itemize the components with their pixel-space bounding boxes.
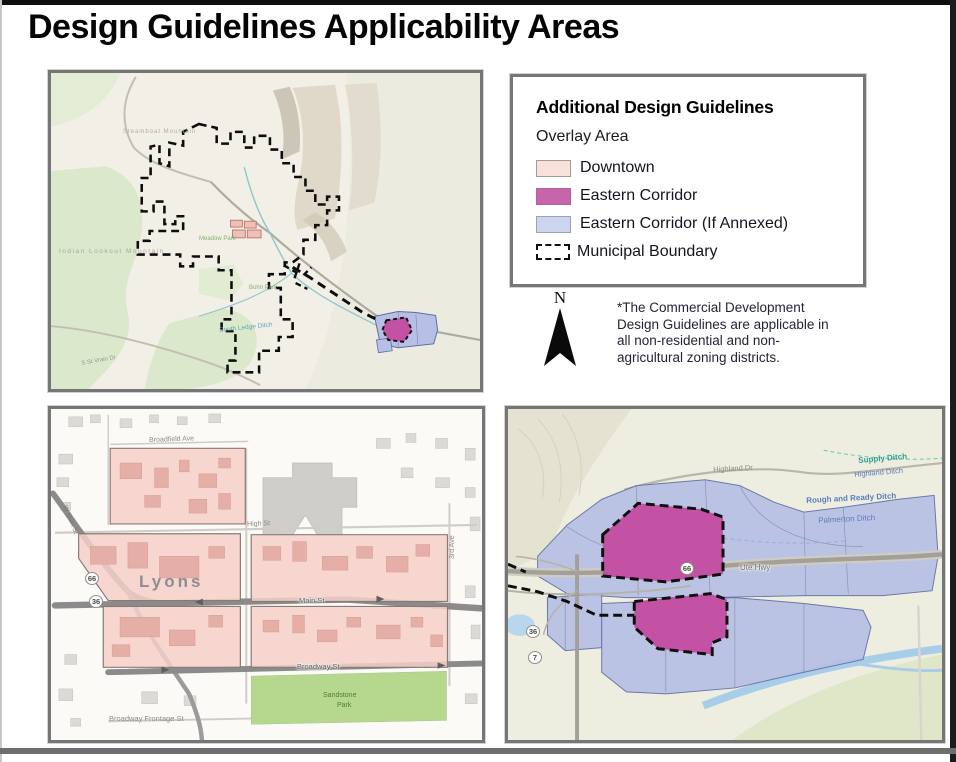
legend-items: DowntownEastern CorridorEastern Corridor… [536, 154, 863, 266]
eastern-corridor-map: Highland DrSupply DitchHighland DitchRou… [505, 406, 945, 743]
legend-item-downtown: Downtown [536, 154, 863, 182]
municipal-overview-map: Steamboat MountainIndian Lookout Mountai… [48, 70, 483, 392]
page-top-rule [0, 0, 956, 5]
design-guidelines-figure: Design Guidelines Applicability Areas [0, 0, 956, 762]
eastern-map-artwork [508, 409, 942, 740]
legend-label: Eastern Corridor (If Annexed) [580, 215, 788, 233]
north-arrow: N [538, 288, 582, 371]
color-swatch [536, 188, 571, 205]
legend-subtitle: Overlay Area [536, 128, 863, 146]
color-swatch [536, 160, 571, 177]
legend-label: Eastern Corridor [580, 187, 697, 205]
map-legend: Additional Design Guidelines Overlay Are… [510, 74, 866, 287]
legend-item-eastern-corridor-annexed: Eastern Corridor (If Annexed) [536, 210, 863, 238]
legend-label: Municipal Boundary [577, 243, 718, 261]
north-arrow-icon [543, 308, 577, 366]
legend-item-municipal-boundary: Municipal Boundary [536, 238, 863, 266]
legend-title: Additional Design Guidelines [536, 97, 863, 118]
page-bottom-rule [0, 748, 956, 754]
legend-item-eastern-corridor: Eastern Corridor [536, 182, 863, 210]
page-title: Design Guidelines Applicability Areas [28, 8, 619, 47]
applicability-note: *The Commercial Development Design Guide… [617, 300, 841, 366]
page-left-rule [0, 0, 2, 762]
color-swatch [536, 216, 571, 233]
municipal-boundary-swatch [536, 244, 570, 260]
page-right-rule [950, 0, 956, 762]
legend-label: Downtown [580, 159, 655, 177]
downtown-lyons-map: Broadfield AveHigh StLyonsMain StBroadwa… [48, 406, 485, 743]
overview-map-artwork [51, 73, 480, 389]
downtown-map-artwork [51, 409, 482, 740]
north-label: N [538, 288, 582, 308]
